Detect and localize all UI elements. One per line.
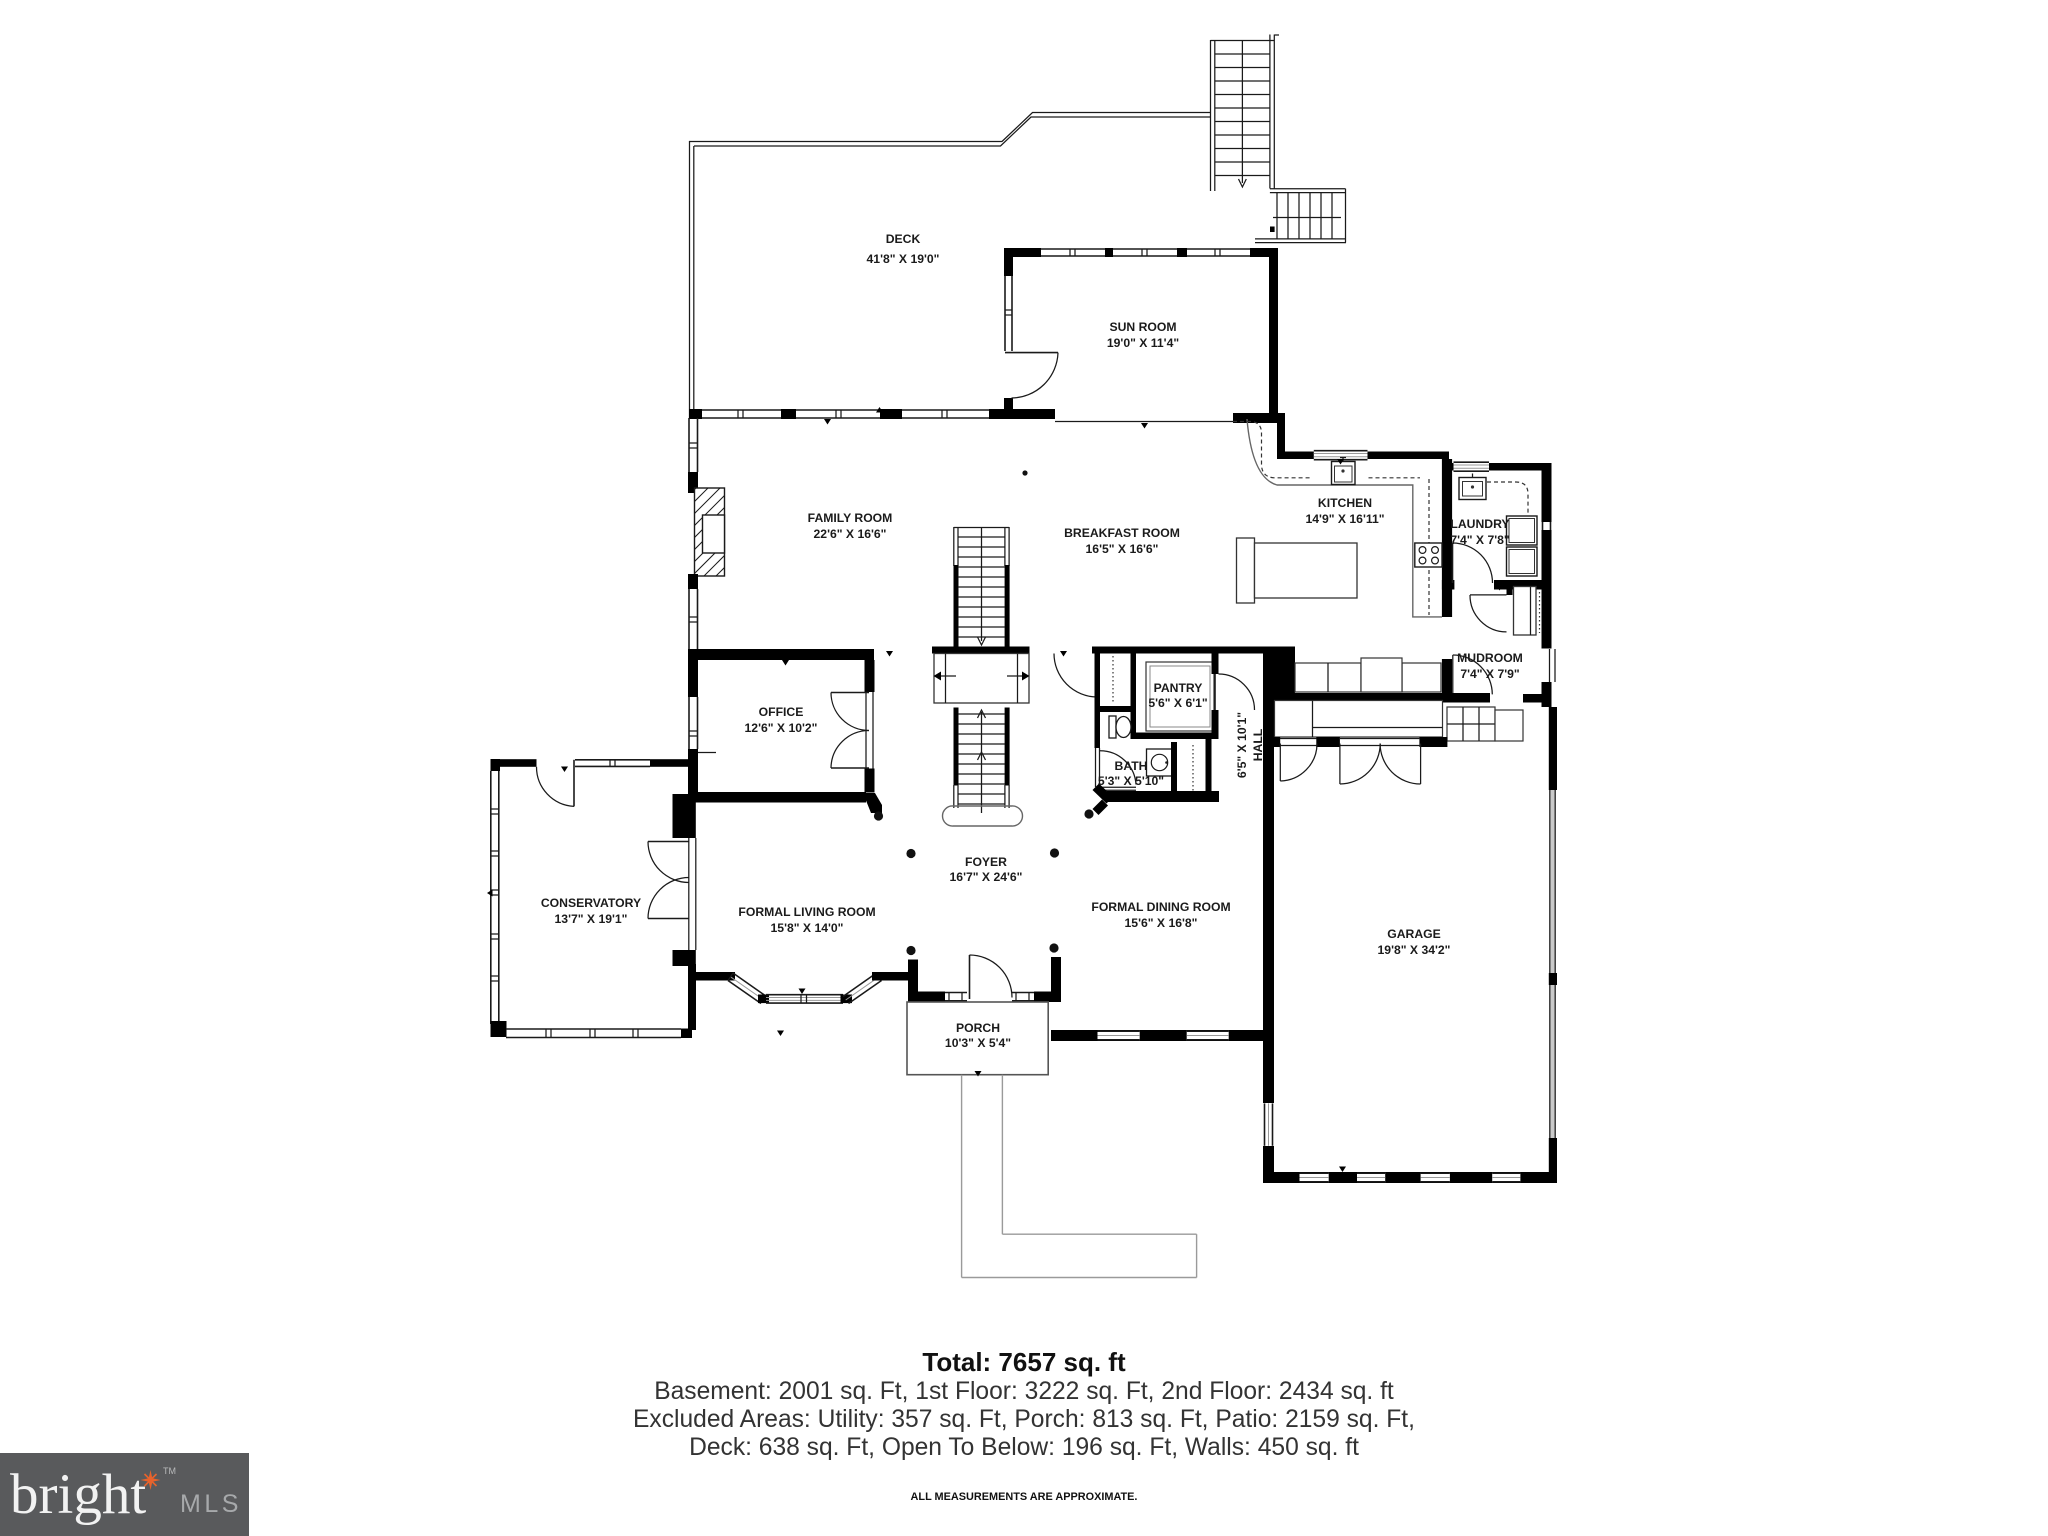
svg-text:6'5" X 10'1": 6'5" X 10'1" xyxy=(1235,712,1249,778)
svg-text:PANTRY: PANTRY xyxy=(1154,681,1203,695)
svg-text:FAMILY ROOM: FAMILY ROOM xyxy=(808,511,893,525)
svg-text:KITCHEN: KITCHEN xyxy=(1318,496,1372,510)
svg-text:FOYER: FOYER xyxy=(965,855,1007,869)
svg-text:15'6" X 16'8": 15'6" X 16'8" xyxy=(1125,916,1198,930)
svg-text:BREAKFAST ROOM: BREAKFAST ROOM xyxy=(1064,526,1180,540)
svg-text:22'6" X 16'6": 22'6" X 16'6" xyxy=(814,527,887,541)
svg-text:13'7" X 19'1": 13'7" X 19'1" xyxy=(555,912,628,926)
svg-text:Excluded Areas: Utility: 357 s: Excluded Areas: Utility: 357 sq. Ft, Por… xyxy=(633,1406,1415,1433)
svg-text:HALL: HALL xyxy=(1251,728,1265,761)
svg-text:MLS: MLS xyxy=(180,1490,242,1518)
svg-text:5'3" X 5'10": 5'3" X 5'10" xyxy=(1098,774,1164,788)
svg-text:BATH: BATH xyxy=(1115,759,1148,773)
svg-text:Basement: 2001 sq. Ft, 1st Flo: Basement: 2001 sq. Ft, 1st Floor: 3222 s… xyxy=(654,1378,1394,1405)
svg-text:LAUNDRY: LAUNDRY xyxy=(1450,517,1509,531)
svg-text:7'4" X 7'8": 7'4" X 7'8" xyxy=(1450,533,1509,547)
svg-text:16'7" X 24'6": 16'7" X 24'6" xyxy=(950,870,1023,884)
svg-text:5'6" X 6'1": 5'6" X 6'1" xyxy=(1148,696,1207,710)
svg-text:TM: TM xyxy=(163,1466,176,1476)
svg-text:ALL MEASUREMENTS ARE APPROXIMA: ALL MEASUREMENTS ARE APPROXIMATE. xyxy=(911,1491,1138,1503)
svg-text:14'9" X 16'11": 14'9" X 16'11" xyxy=(1305,512,1384,526)
svg-text:Deck: 638 sq. Ft, Open To Belo: Deck: 638 sq. Ft, Open To Below: 196 sq.… xyxy=(689,1434,1359,1461)
svg-text:FORMAL LIVING ROOM: FORMAL LIVING ROOM xyxy=(738,905,875,919)
svg-text:FORMAL DINING ROOM: FORMAL DINING ROOM xyxy=(1091,900,1230,914)
svg-text:Total: 7657 sq. ft: Total: 7657 sq. ft xyxy=(922,1347,1126,1377)
svg-text:41'8" X 19'0": 41'8" X 19'0" xyxy=(867,252,940,266)
svg-text:19'0" X 11'4": 19'0" X 11'4" xyxy=(1107,336,1179,350)
svg-text:7'4" X 7'9": 7'4" X 7'9" xyxy=(1460,667,1519,681)
svg-text:OFFICE: OFFICE xyxy=(759,705,804,719)
svg-text:GARAGE: GARAGE xyxy=(1387,927,1441,941)
svg-text:19'8" X 34'2": 19'8" X 34'2" xyxy=(1378,943,1451,957)
svg-text:DECK: DECK xyxy=(886,232,921,246)
svg-text:10'3" X 5'4": 10'3" X 5'4" xyxy=(945,1036,1011,1050)
svg-text:15'8" X 14'0": 15'8" X 14'0" xyxy=(771,921,844,935)
svg-text:MUDROOM: MUDROOM xyxy=(1457,651,1523,665)
svg-text:12'6" X 10'2": 12'6" X 10'2" xyxy=(745,721,818,735)
svg-text:CONSERVATORY: CONSERVATORY xyxy=(541,896,641,910)
svg-text:16'5" X 16'6": 16'5" X 16'6" xyxy=(1086,542,1159,556)
svg-text:PORCH: PORCH xyxy=(956,1021,1000,1035)
svg-text:bright: bright xyxy=(10,1463,146,1526)
svg-text:SUN ROOM: SUN ROOM xyxy=(1109,320,1176,334)
